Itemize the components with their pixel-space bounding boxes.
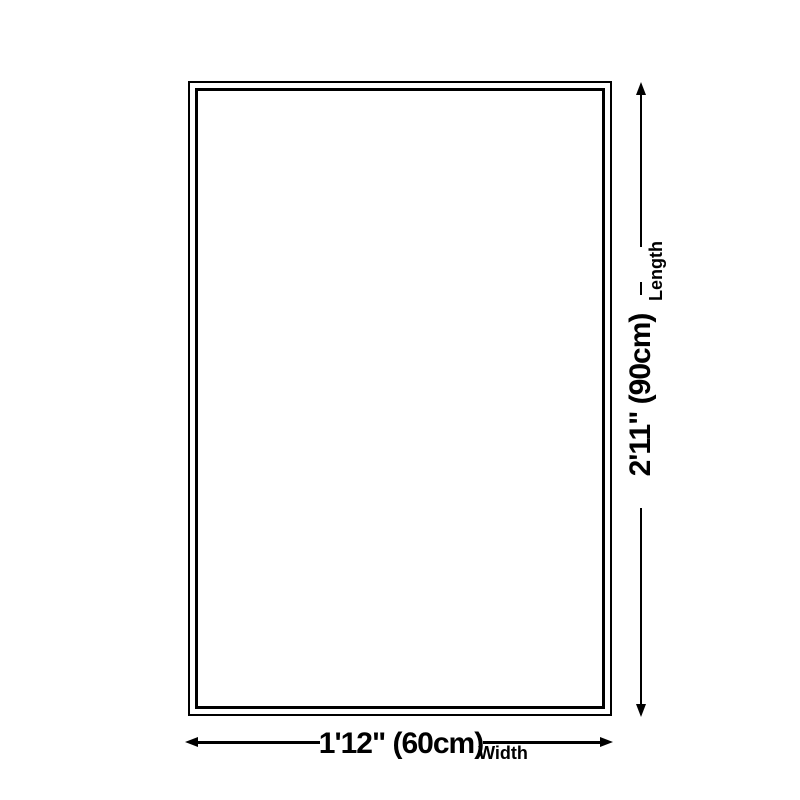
length-dimension-line (640, 508, 643, 707)
length-axis-label: Length (647, 241, 665, 301)
width-arrow-right-icon (600, 737, 613, 747)
rug-outline (188, 81, 612, 716)
width-value-label: 1'12" (60cm) (319, 729, 483, 759)
length-value-label: 2'11" (90cm) (626, 314, 656, 477)
rug-inner-border (195, 88, 605, 709)
length-dimension-line (640, 92, 643, 247)
length-arrow-down-icon (636, 704, 646, 717)
dimension-diagram: 2'11" (90cm) Length 1'12" (60cm) Width (0, 0, 800, 800)
length-dimension-line-sliver (640, 282, 643, 295)
width-axis-label: Width (478, 744, 528, 762)
width-dimension-line (192, 741, 320, 744)
